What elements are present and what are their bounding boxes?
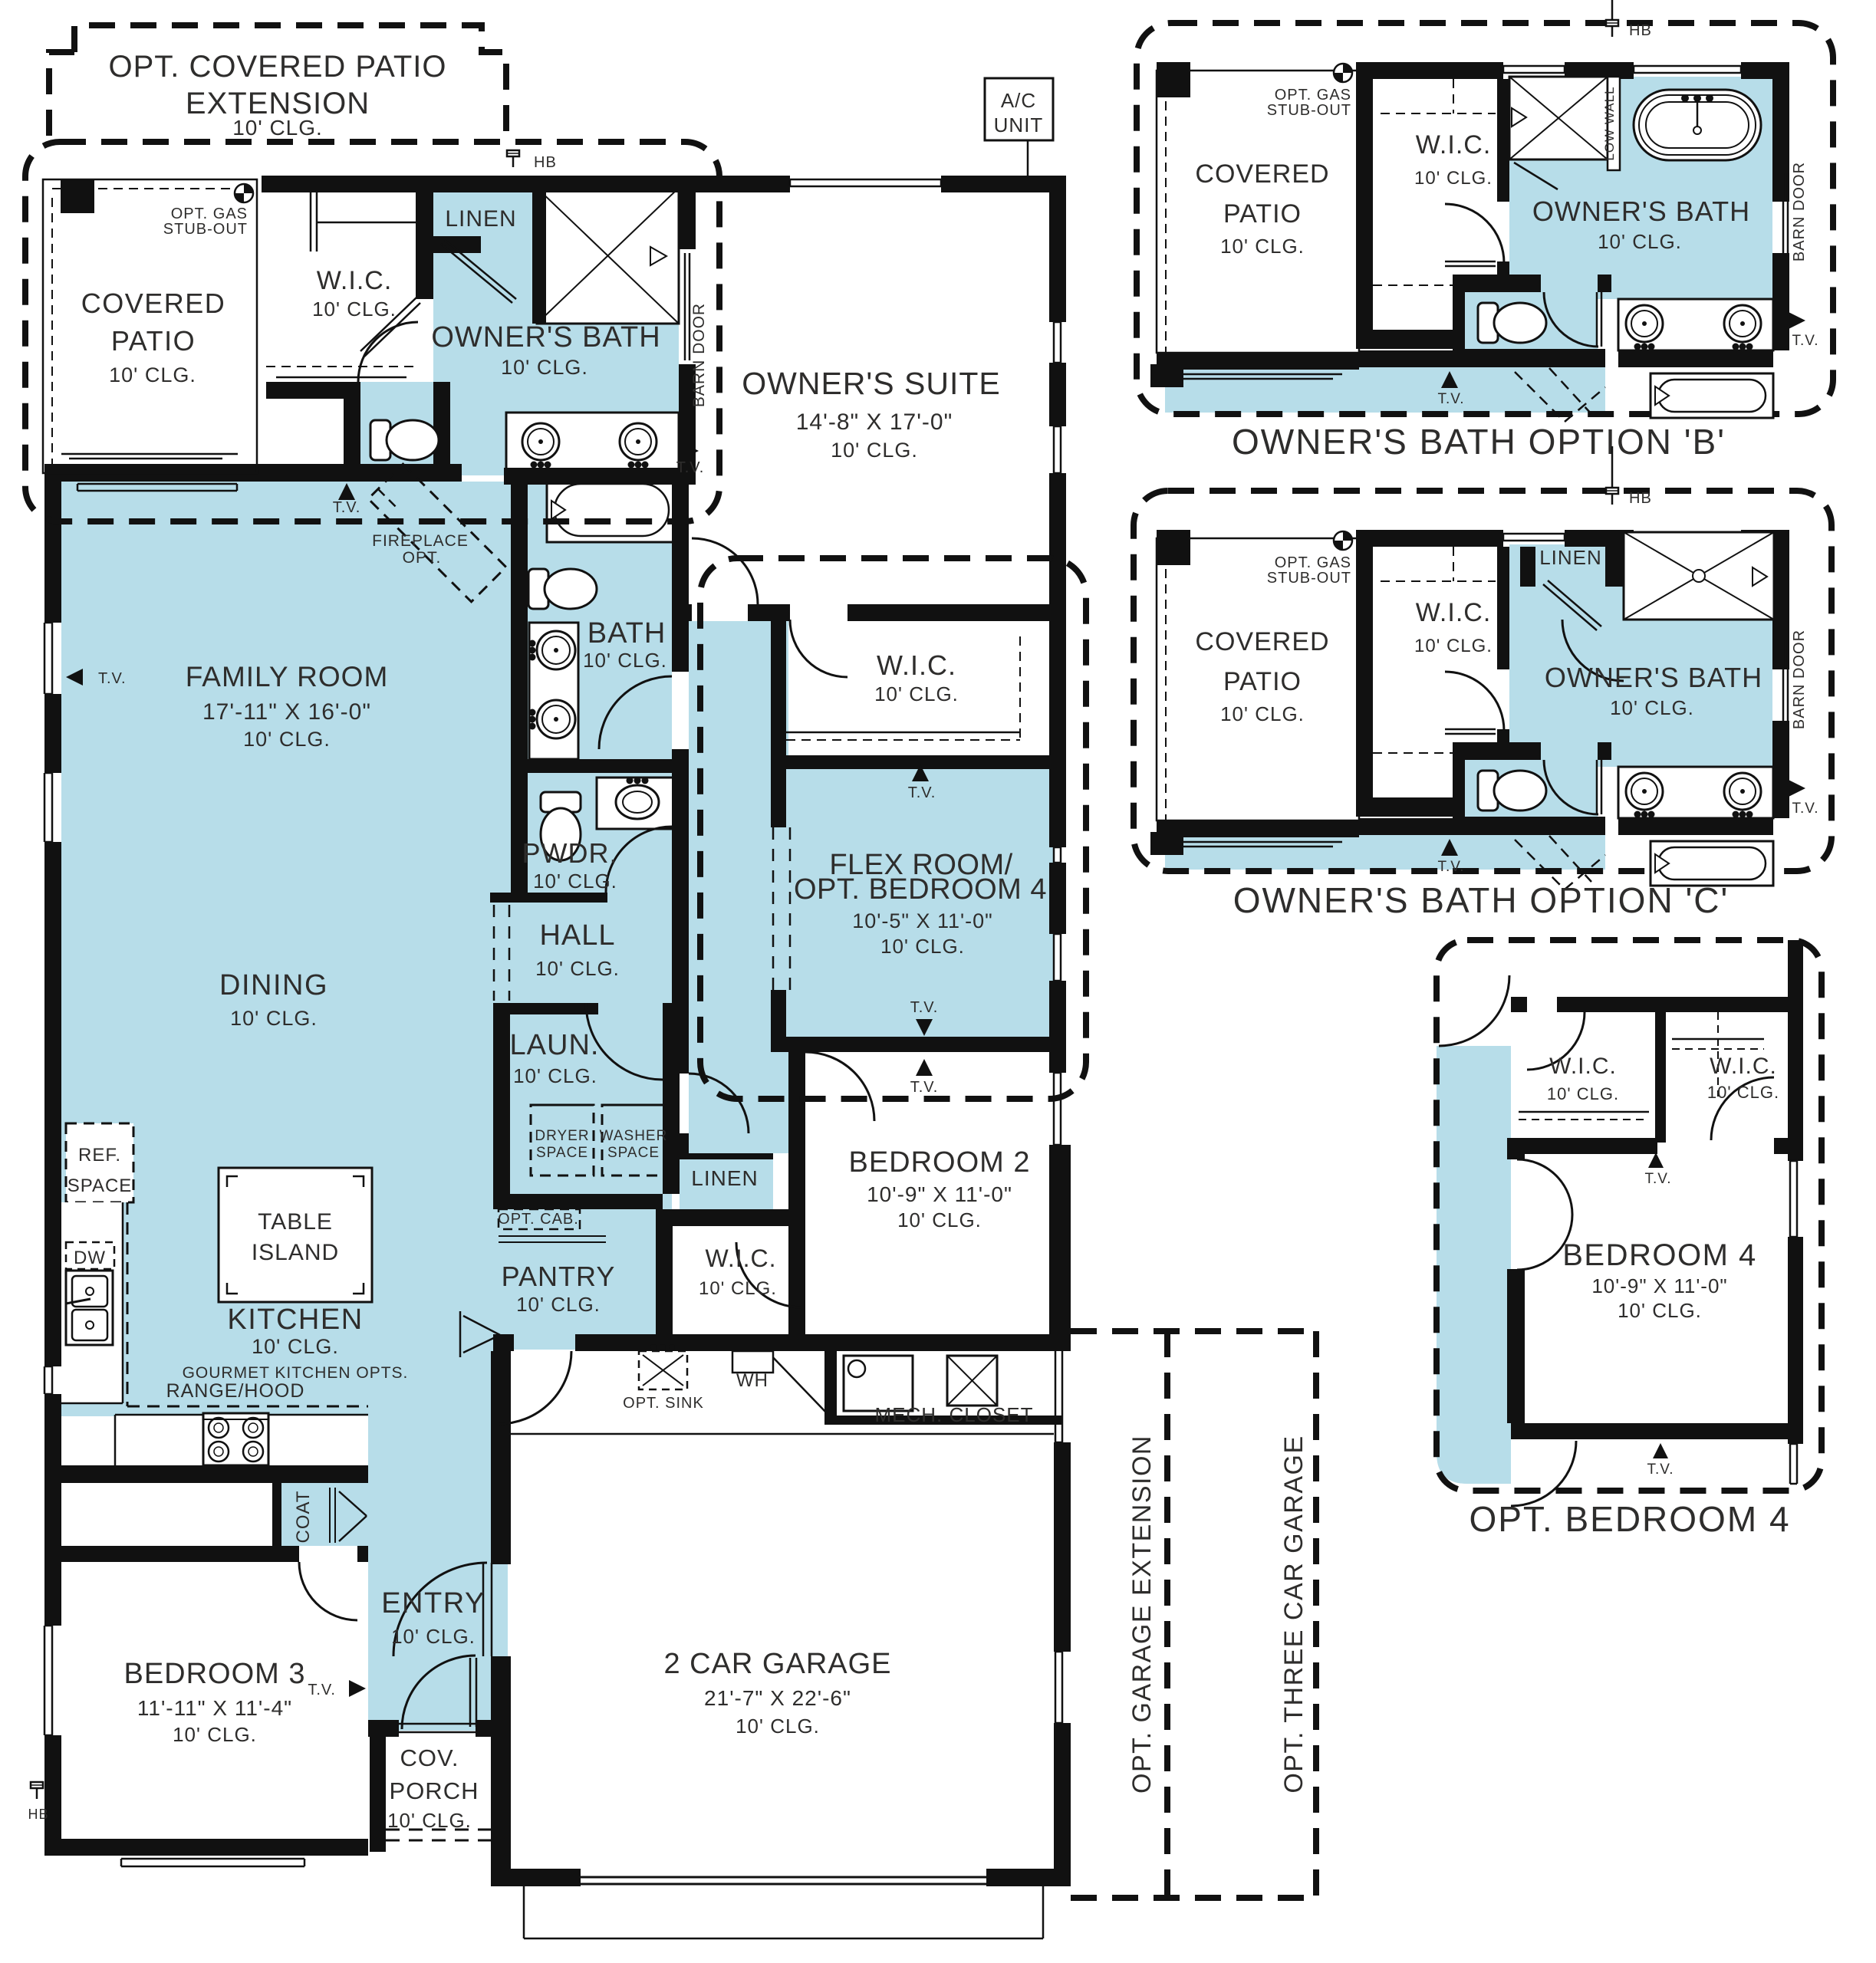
svg-text:10' CLG.: 10' CLG. — [1707, 1083, 1779, 1102]
svg-text:10' CLG.: 10' CLG. — [501, 356, 588, 379]
svg-text:10' CLG.: 10' CLG. — [535, 957, 620, 980]
svg-text:LAUN.: LAUN. — [510, 1029, 600, 1061]
svg-text:T.V.: T.V. — [308, 1682, 336, 1698]
svg-text:COAT: COAT — [293, 1491, 314, 1544]
svg-text:BEDROOM 3: BEDROOM 3 — [123, 1658, 305, 1690]
svg-text:W.I.C.: W.I.C. — [1549, 1054, 1617, 1079]
svg-text:BEDROOM 4: BEDROOM 4 — [1562, 1238, 1757, 1272]
svg-text:10' CLG.: 10' CLG. — [874, 682, 959, 705]
svg-text:10' CLG.: 10' CLG. — [1610, 696, 1694, 719]
svg-text:LINEN: LINEN — [445, 206, 516, 232]
svg-text:10' CLG.: 10' CLG. — [312, 298, 397, 321]
svg-text:10' CLG.: 10' CLG. — [243, 728, 331, 751]
svg-text:T.V.: T.V. — [333, 499, 361, 516]
svg-text:KITCHEN: KITCHEN — [227, 1304, 363, 1336]
svg-text:14'-8" X 17'-0": 14'-8" X 17'-0" — [796, 409, 953, 435]
svg-text:BARN DOOR: BARN DOOR — [1791, 162, 1808, 261]
svg-text:T.V.: T.V. — [908, 784, 936, 801]
svg-text:OPT. COVERED PATIO: OPT. COVERED PATIO — [108, 50, 446, 84]
svg-text:PATIO: PATIO — [1223, 199, 1302, 229]
svg-text:OPT. GARAGE EXTENSION: OPT. GARAGE EXTENSION — [1127, 1435, 1157, 1794]
svg-text:T.V.: T.V. — [910, 1079, 939, 1096]
svg-text:ISLAND: ISLAND — [252, 1240, 339, 1265]
svg-text:10' CLG.: 10' CLG. — [1220, 702, 1305, 725]
svg-text:OPT. SINK: OPT. SINK — [623, 1395, 704, 1412]
svg-text:10' CLG.: 10' CLG. — [583, 649, 667, 672]
svg-text:STUB-OUT: STUB-OUT — [1267, 570, 1351, 587]
svg-text:DW: DW — [74, 1248, 106, 1268]
svg-text:T.V.: T.V. — [1438, 391, 1465, 407]
svg-text:T.V.: T.V. — [1647, 1462, 1674, 1478]
svg-text:PWDR.: PWDR. — [522, 837, 618, 869]
svg-text:SPACE: SPACE — [607, 1145, 660, 1161]
svg-text:OPT. THREE CAR GARAGE: OPT. THREE CAR GARAGE — [1279, 1435, 1308, 1793]
svg-text:DRYER: DRYER — [535, 1128, 589, 1144]
svg-text:10'-9" X 11'-0": 10'-9" X 11'-0" — [1591, 1274, 1727, 1297]
svg-text:W.I.C.: W.I.C. — [1416, 130, 1492, 159]
svg-text:PATIO: PATIO — [1223, 667, 1302, 696]
svg-text:HB: HB — [1629, 490, 1652, 507]
svg-text:10' CLG.: 10' CLG. — [109, 363, 196, 386]
svg-text:MECH. CLOSET: MECH. CLOSET — [874, 1403, 1033, 1426]
svg-text:WASHER: WASHER — [600, 1128, 668, 1144]
svg-text:HB: HB — [534, 154, 557, 171]
svg-text:SPACE: SPACE — [536, 1145, 588, 1161]
svg-text:PATIO: PATIO — [111, 325, 196, 357]
svg-text:COVERED: COVERED — [1195, 627, 1329, 656]
svg-text:COV.: COV. — [400, 1744, 459, 1771]
svg-text:PANTRY: PANTRY — [502, 1261, 616, 1292]
svg-text:10' CLG.: 10' CLG. — [232, 116, 323, 140]
svg-text:RANGE/HOOD: RANGE/HOOD — [166, 1380, 305, 1402]
svg-text:PORCH: PORCH — [390, 1777, 479, 1804]
svg-text:21'-7" X 22'-6": 21'-7" X 22'-6" — [704, 1686, 851, 1710]
svg-text:T.V.: T.V. — [1792, 801, 1819, 817]
svg-text:LINEN: LINEN — [1539, 546, 1602, 569]
svg-text:10' CLG.: 10' CLG. — [252, 1335, 339, 1358]
svg-text:OPT. BEDROOM 4: OPT. BEDROOM 4 — [794, 873, 1047, 906]
svg-text:OPT.: OPT. — [403, 549, 442, 567]
svg-text:OWNER'S BATH: OWNER'S BATH — [431, 321, 660, 353]
svg-text:10' CLG.: 10' CLG. — [1618, 1299, 1702, 1322]
svg-text:W.I.C.: W.I.C. — [705, 1245, 776, 1272]
svg-text:OPT. BEDROOM 4: OPT. BEDROOM 4 — [1469, 1499, 1790, 1539]
svg-text:10' CLG.: 10' CLG. — [1598, 230, 1682, 253]
svg-text:OWNER'S BATH OPTION 'B': OWNER'S BATH OPTION 'B' — [1232, 422, 1726, 462]
svg-text:11'-11" X 11'-4": 11'-11" X 11'-4" — [137, 1696, 292, 1720]
svg-text:10'-9" X 11'-0": 10'-9" X 11'-0" — [867, 1182, 1012, 1206]
svg-text:TABLE: TABLE — [258, 1209, 333, 1235]
svg-text:BARN DOOR: BARN DOOR — [1791, 630, 1808, 729]
svg-text:OWNER'S BATH: OWNER'S BATH — [1532, 196, 1750, 227]
svg-text:10' CLG.: 10' CLG. — [387, 1809, 472, 1832]
svg-text:T.V.: T.V. — [676, 459, 705, 476]
svg-text:COVERED: COVERED — [81, 288, 226, 319]
svg-text:10' CLG.: 10' CLG. — [897, 1208, 982, 1231]
svg-text:10' CLG.: 10' CLG. — [173, 1723, 257, 1746]
svg-text:10' CLG.: 10' CLG. — [230, 1007, 318, 1030]
svg-text:BEDROOM 2: BEDROOM 2 — [848, 1146, 1030, 1179]
svg-text:COVERED: COVERED — [1195, 159, 1329, 189]
svg-text:SPACE: SPACE — [67, 1175, 133, 1196]
svg-text:10' CLG.: 10' CLG. — [513, 1064, 597, 1087]
svg-text:W.I.C.: W.I.C. — [877, 649, 956, 681]
svg-text:2 CAR GARAGE: 2 CAR GARAGE — [663, 1648, 891, 1680]
svg-text:W.I.C.: W.I.C. — [1416, 598, 1492, 627]
svg-text:ENTRY: ENTRY — [381, 1587, 485, 1619]
svg-text:T.V.: T.V. — [98, 670, 127, 687]
svg-text:BARN DOOR: BARN DOOR — [690, 303, 708, 407]
svg-text:DINING: DINING — [219, 969, 328, 1001]
svg-text:W.I.C.: W.I.C. — [317, 266, 393, 295]
svg-text:10' CLG.: 10' CLG. — [516, 1293, 601, 1316]
svg-text:OPT. GAS: OPT. GAS — [1275, 554, 1351, 571]
svg-text:STUB-OUT: STUB-OUT — [1267, 102, 1351, 119]
svg-text:FIREPLACE: FIREPLACE — [372, 532, 469, 550]
svg-text:OWNER'S SUITE: OWNER'S SUITE — [742, 366, 1000, 401]
svg-text:HALL: HALL — [539, 919, 615, 952]
svg-text:10' CLG.: 10' CLG. — [880, 935, 965, 958]
svg-text:WH: WH — [736, 1370, 769, 1391]
svg-text:LOW WALL: LOW WALL — [1602, 86, 1617, 160]
svg-text:10' CLG.: 10' CLG. — [699, 1278, 777, 1299]
svg-text:HB: HB — [1629, 22, 1652, 39]
svg-text:A/C: A/C — [1001, 89, 1036, 112]
svg-text:GOURMET KITCHEN OPTS.: GOURMET KITCHEN OPTS. — [183, 1364, 409, 1382]
svg-text:BATH: BATH — [587, 617, 666, 649]
svg-text:OPT. CAB.: OPT. CAB. — [498, 1211, 579, 1228]
svg-text:REF.: REF. — [78, 1145, 121, 1166]
svg-text:OWNER'S BATH OPTION 'C': OWNER'S BATH OPTION 'C' — [1233, 880, 1730, 920]
svg-text:T.V.: T.V. — [1792, 333, 1819, 349]
svg-text:T.V.: T.V. — [1645, 1171, 1672, 1187]
svg-text:T.V.: T.V. — [910, 999, 939, 1016]
svg-text:10' CLG.: 10' CLG. — [391, 1625, 476, 1648]
svg-text:10' CLG.: 10' CLG. — [736, 1715, 820, 1738]
svg-text:FAMILY ROOM: FAMILY ROOM — [186, 661, 389, 692]
svg-text:STUB-OUT: STUB-OUT — [163, 221, 248, 238]
svg-text:10' CLG.: 10' CLG. — [1220, 235, 1305, 258]
svg-text:UNIT: UNIT — [994, 113, 1044, 136]
svg-text:OWNER'S BATH: OWNER'S BATH — [1545, 662, 1762, 693]
svg-text:10' CLG.: 10' CLG. — [831, 439, 918, 462]
svg-text:LINEN: LINEN — [691, 1166, 758, 1190]
svg-text:17'-11" X 16'-0": 17'-11" X 16'-0" — [202, 699, 371, 725]
svg-text:W.I.C.: W.I.C. — [1710, 1054, 1777, 1079]
svg-text:10'-5" X 11'-0": 10'-5" X 11'-0" — [852, 909, 993, 932]
svg-text:T.V.: T.V. — [1438, 859, 1465, 875]
svg-text:10' CLG.: 10' CLG. — [1414, 636, 1493, 656]
svg-text:HB: HB — [28, 1807, 48, 1822]
svg-text:10' CLG.: 10' CLG. — [1547, 1084, 1619, 1103]
svg-text:OPT. GAS: OPT. GAS — [171, 206, 248, 222]
svg-text:10' CLG.: 10' CLG. — [533, 870, 617, 893]
svg-text:OPT. GAS: OPT. GAS — [1275, 87, 1351, 104]
svg-text:10' CLG.: 10' CLG. — [1414, 168, 1493, 189]
